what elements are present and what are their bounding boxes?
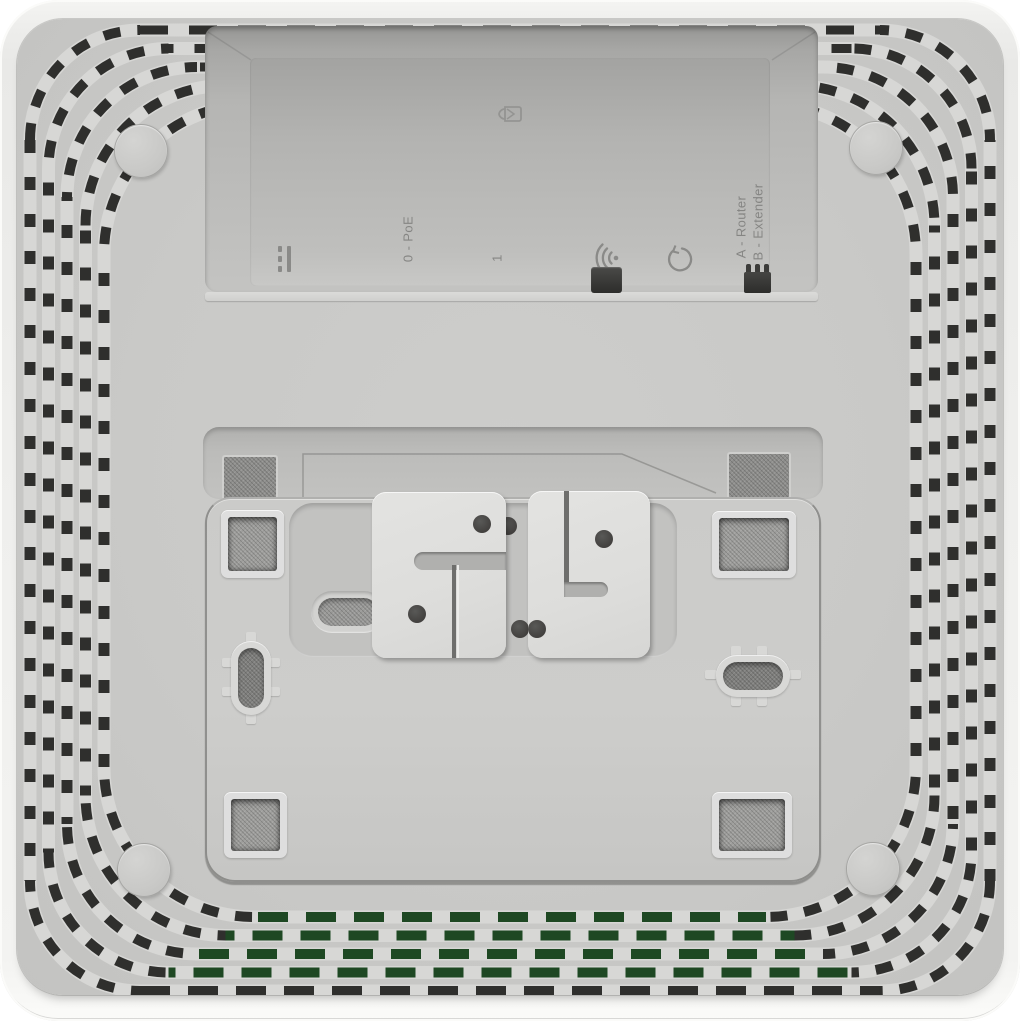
lan-port-label: 1 (490, 254, 505, 262)
connector-bay-lip (205, 292, 818, 301)
mount-bracket-right (528, 491, 650, 658)
corner-foot-top-left (114, 124, 168, 178)
mount-square-hole-bottom-right (712, 792, 792, 858)
mode-label-router: A - Router (734, 196, 749, 259)
bracket-slit-left (452, 565, 456, 658)
wps-button[interactable] (591, 267, 622, 293)
poe-port-label: 0 - PoE (401, 216, 416, 262)
bracket-slit-left-highlight (457, 565, 459, 658)
dc-power-icon (277, 245, 293, 273)
corner-foot-bottom-left (117, 843, 171, 897)
bracket-screw-dot (408, 605, 426, 623)
reset-icon (664, 244, 694, 274)
bracket-screw-dot (473, 515, 491, 533)
corner-foot-bottom-right (846, 842, 900, 896)
strip-vent-hole-left (222, 455, 278, 500)
mount-square-hole-bottom-left (224, 792, 287, 858)
bracket-slit-right (564, 491, 569, 585)
lock-icon (492, 100, 526, 128)
corner-foot-top-right (849, 121, 903, 175)
device-rear-photo: 0 - PoE 1 A - Router B - Extender (0, 0, 1020, 1021)
recess-hole-dot (511, 620, 529, 638)
finger-slot-opening (318, 598, 378, 626)
bracket-screw-dot (595, 530, 613, 548)
bracket-screw-dot (528, 620, 546, 638)
bracket-slot-right (564, 582, 608, 597)
mode-label-extender: B - Extender (751, 183, 766, 260)
connector-bay (205, 26, 818, 292)
strip-vent-hole-right (727, 452, 791, 500)
mount-square-hole-top-right (712, 511, 796, 578)
bracket-slot-left (414, 552, 506, 570)
mount-square-hole-top-left (221, 510, 284, 578)
